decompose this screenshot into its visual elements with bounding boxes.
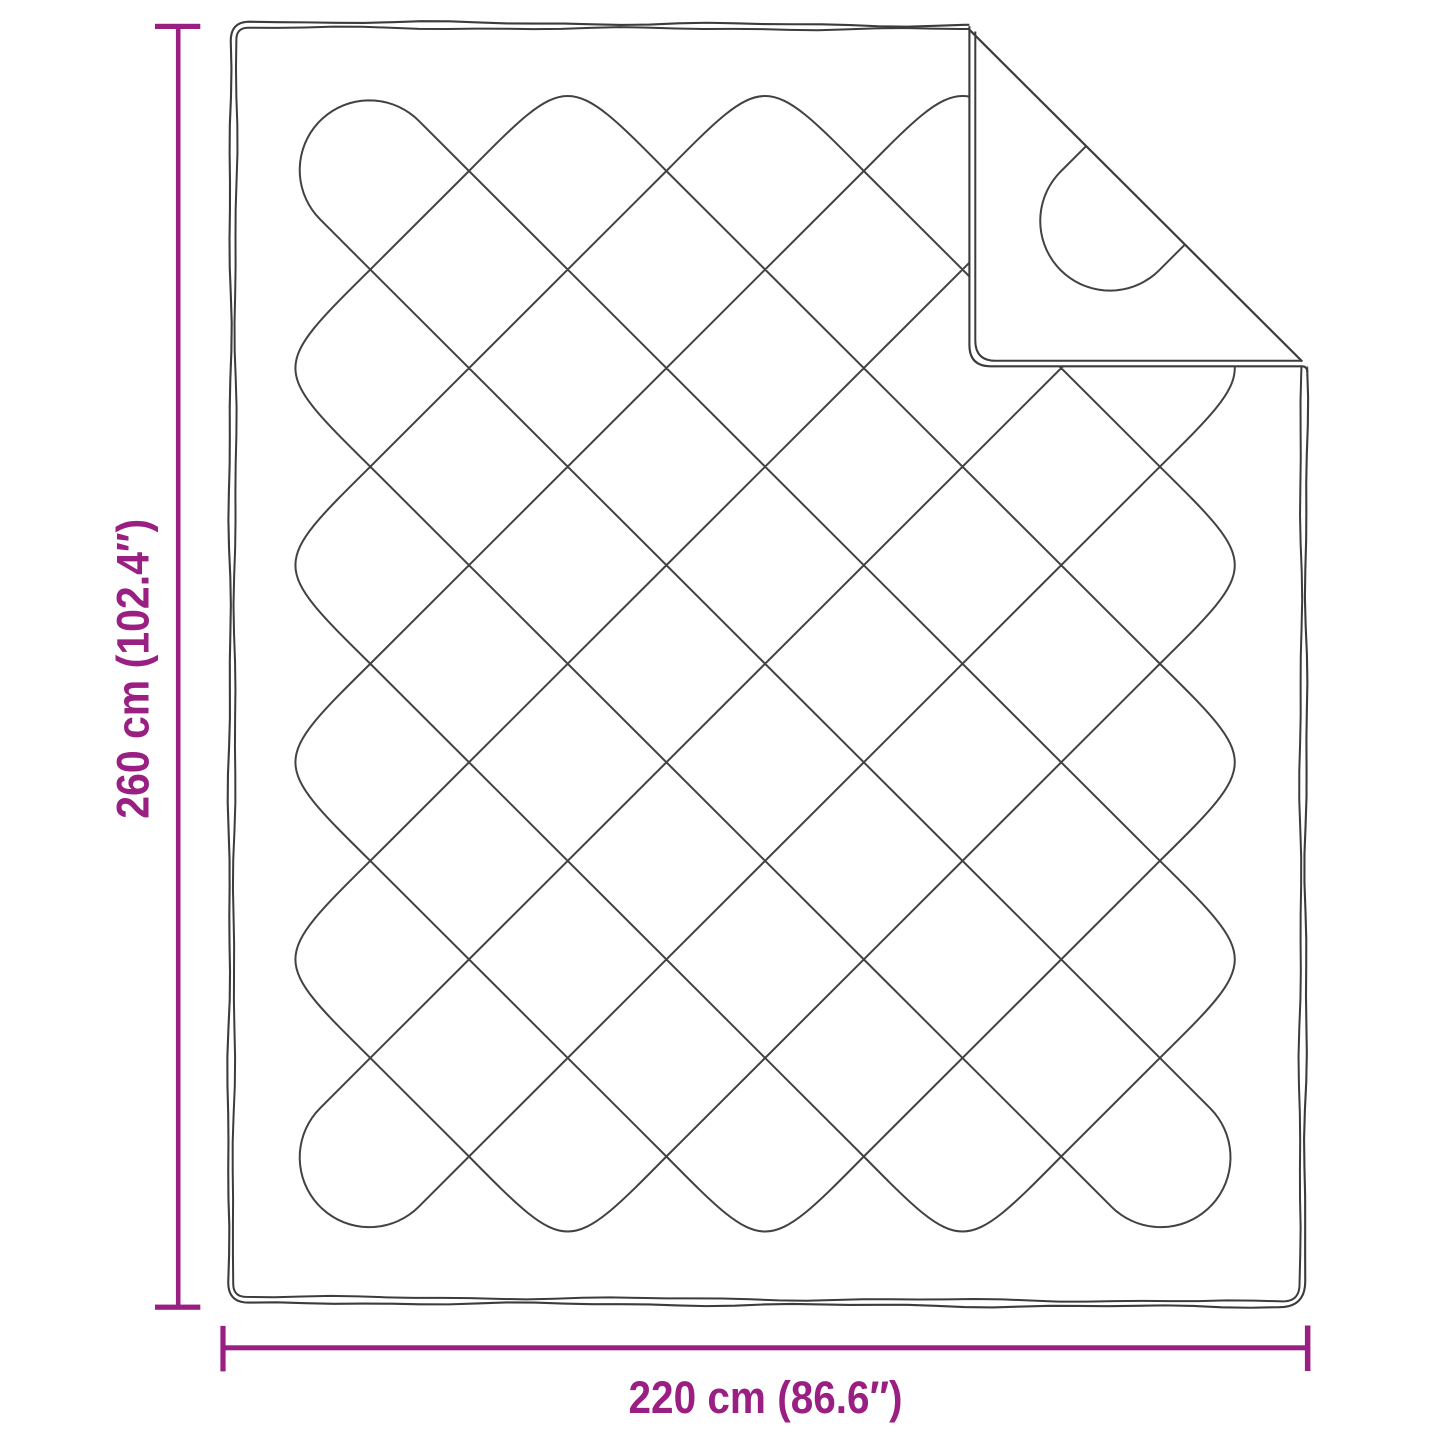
svg-text:260 cm (102.4″): 260 cm (102.4″): [107, 519, 158, 819]
svg-text:220 cm (86.6″): 220 cm (86.6″): [629, 1372, 903, 1423]
